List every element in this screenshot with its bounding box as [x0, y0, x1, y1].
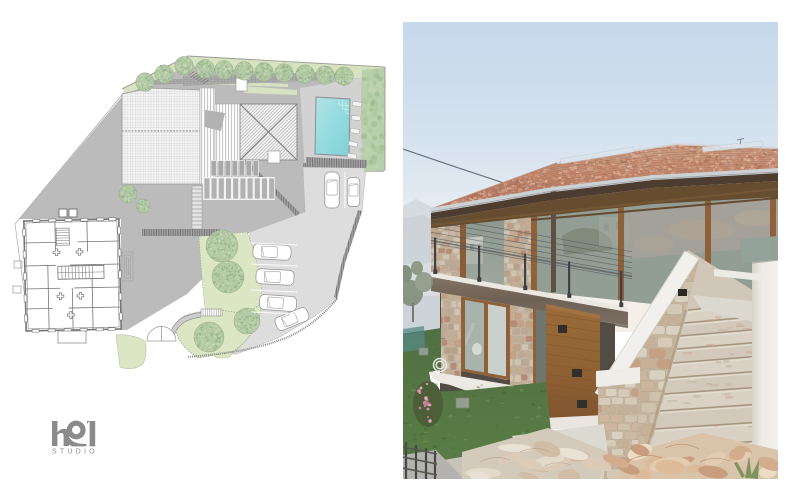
svg-text:STUDIO: STUDIO [52, 449, 99, 456]
